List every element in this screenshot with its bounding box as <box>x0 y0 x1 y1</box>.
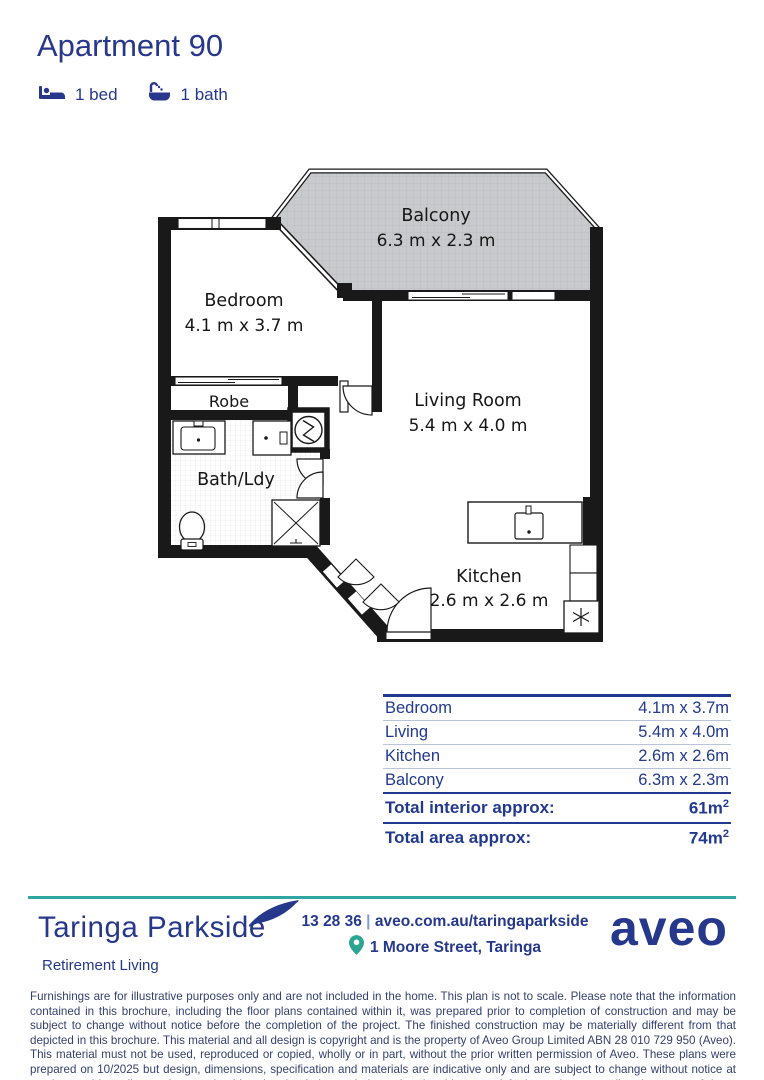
row-value: 4.1m x 3.7m <box>638 699 729 718</box>
balcony-label: Balcony <box>401 206 470 226</box>
phone-number: 13 28 36 <box>302 913 362 930</box>
bath-label: Bath/Ldy <box>197 470 275 490</box>
bedroom-label: Bedroom <box>204 291 283 311</box>
location-pin-icon <box>349 935 364 960</box>
bedroom-dims: 4.1 m x 3.7 m <box>185 316 304 336</box>
contact-line: 13 28 36 | aveo.com.au/taringaparkside <box>300 913 590 931</box>
brand-logo: Taringa Parkside <box>38 911 266 945</box>
row-label: Bedroom <box>385 699 452 718</box>
entry-doors <box>327 559 399 611</box>
living-label: Living Room <box>414 391 521 411</box>
bed-label: 1 bed <box>75 85 118 105</box>
bed-count: 1 bed <box>38 83 118 106</box>
total-area-row: Total area approx: 74m2 <box>383 822 731 852</box>
bath-label: 1 bath <box>181 85 228 105</box>
bath-icon <box>148 82 172 107</box>
laundry-nook <box>290 410 327 450</box>
robe-label: Robe <box>209 392 249 411</box>
table-row: Balcony 6.3m x 2.3m <box>383 769 731 792</box>
kitchen-fixtures <box>468 497 603 633</box>
brochure-page: Apartment 90 1 bed 1 bath <box>0 0 764 1080</box>
row-label: Balcony <box>385 771 444 790</box>
row-label: Living <box>385 723 428 742</box>
table-row: Kitchen 2.6m x 2.6m <box>383 745 731 769</box>
website-link[interactable]: aveo.com.au/taringaparkside <box>375 913 589 930</box>
separator: | <box>366 913 370 930</box>
total-value: 61m2 <box>689 798 729 819</box>
living-dims: 5.4 m x 4.0 m <box>409 416 528 436</box>
entry-diagonal-wall <box>311 551 383 632</box>
contact-block: 13 28 36 | aveo.com.au/taringaparkside 1… <box>300 913 590 960</box>
row-value: 6.3m x 2.3m <box>638 771 729 790</box>
table-row: Living 5.4m x 4.0m <box>383 721 731 745</box>
table-row: Bedroom 4.1m x 3.7m <box>383 697 731 721</box>
page-title: Apartment 90 <box>37 28 223 64</box>
balcony-dims: 6.3 m x 2.3 m <box>377 231 496 251</box>
disclaimer-text: Furnishings are for illustrative purpose… <box>30 990 736 1080</box>
kitchen-dims: 2.6 m x 2.6 m <box>430 591 549 611</box>
total-interior-row: Total interior approx: 61m2 <box>383 792 731 822</box>
row-label: Kitchen <box>385 747 440 766</box>
total-value: 74m2 <box>689 828 729 849</box>
area-summary-table: Bedroom 4.1m x 3.7m Living 5.4m x 4.0m K… <box>383 694 731 852</box>
row-value: 5.4m x 4.0m <box>638 723 729 742</box>
row-value: 2.6m x 2.6m <box>638 747 729 766</box>
bath-count: 1 bath <box>148 82 228 107</box>
total-label: Total interior approx: <box>385 798 555 818</box>
aveo-logo: aveo <box>610 899 728 957</box>
fridge <box>564 601 599 633</box>
leaf-icon <box>246 898 302 933</box>
address-line: 1 Moore Street, Taringa <box>300 935 590 960</box>
apartment-meta: 1 bed 1 bath <box>38 82 228 107</box>
street-address: 1 Moore Street, Taringa <box>370 939 541 957</box>
kitchen-label: Kitchen <box>456 567 522 587</box>
brand-tagline: Retirement Living <box>42 957 159 974</box>
total-label: Total area approx: <box>385 828 531 848</box>
floor-plan: Balcony 6.3 m x 2.3 m Bedroom 4.1 m x 3.… <box>140 155 620 660</box>
bed-icon <box>38 83 66 106</box>
